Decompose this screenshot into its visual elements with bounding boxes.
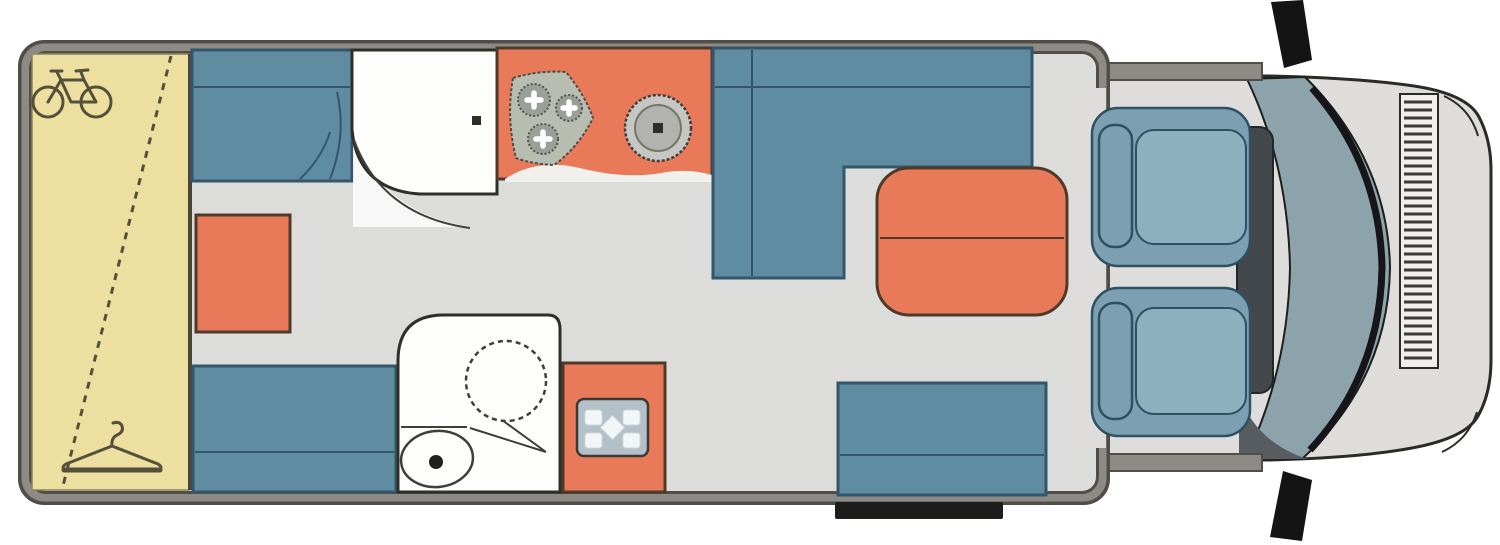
entry-step [835,502,1003,519]
drain-sq-3 [585,433,602,448]
single-bed-bottom [193,366,396,492]
bed-top-mattress [192,50,352,181]
bench-seat [838,383,1046,495]
bed-bottom-mattress [193,366,396,492]
wet-module [563,363,665,492]
mirror-bottom-icon [1270,471,1312,541]
driver-seat [1092,108,1250,266]
single-bed-top [192,50,352,181]
driver-seat-headrest [1099,125,1132,247]
cabinet [196,215,290,332]
driver-seat-cushion [1136,130,1246,244]
sink [625,95,691,161]
passenger-seat [1092,288,1250,436]
drain-sq-4 [623,433,640,448]
floorplan-drawing [0,0,1500,545]
table-top [877,168,1067,315]
garage-area [32,54,189,490]
drain-sq-1 [585,410,602,425]
dining-table [877,168,1067,315]
drain-sq-2 [623,410,640,425]
bench-cushion [838,383,1046,495]
garage [32,54,190,490]
cab [1060,0,1491,541]
kitchen [497,48,712,182]
drain-grid [577,399,648,456]
washbasin [466,341,546,421]
mirror-top-icon [1271,0,1312,68]
sink-drain [653,123,663,133]
grille [1400,94,1438,368]
washroom [398,315,560,492]
passenger-seat-cushion [1136,308,1246,414]
shower-door-handle [472,116,481,125]
toilet-flush-dot [429,455,443,469]
passenger-seat-headrest [1099,303,1132,419]
floorplan-stage [0,0,1500,545]
